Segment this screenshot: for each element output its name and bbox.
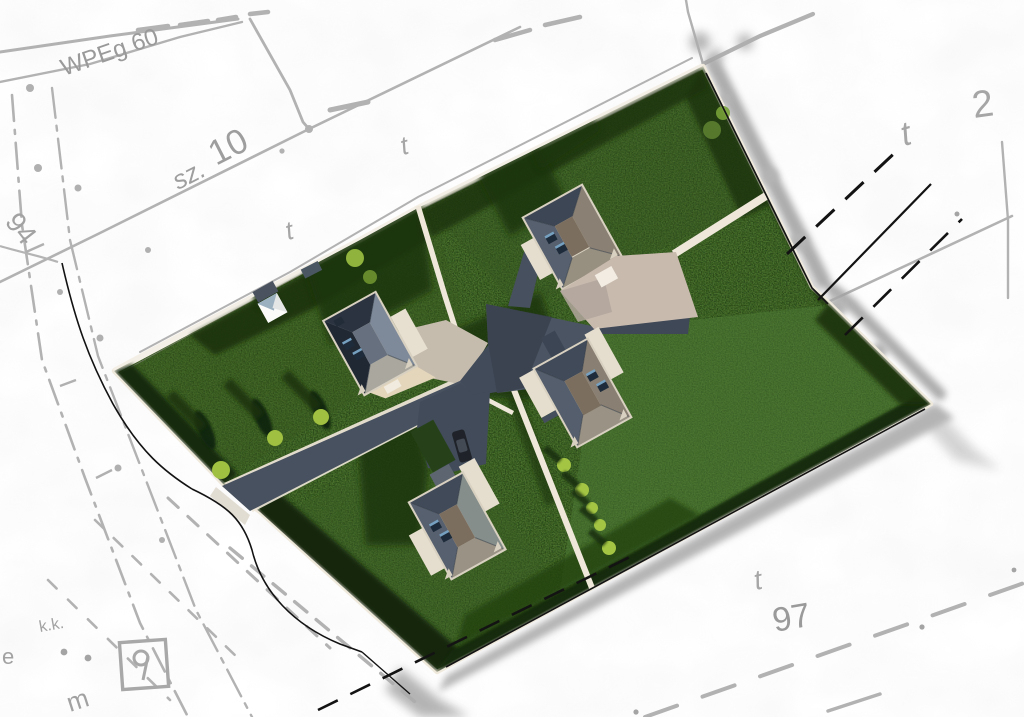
svg-text:97: 97 xyxy=(770,596,814,640)
svg-text:e: e xyxy=(2,644,14,669)
